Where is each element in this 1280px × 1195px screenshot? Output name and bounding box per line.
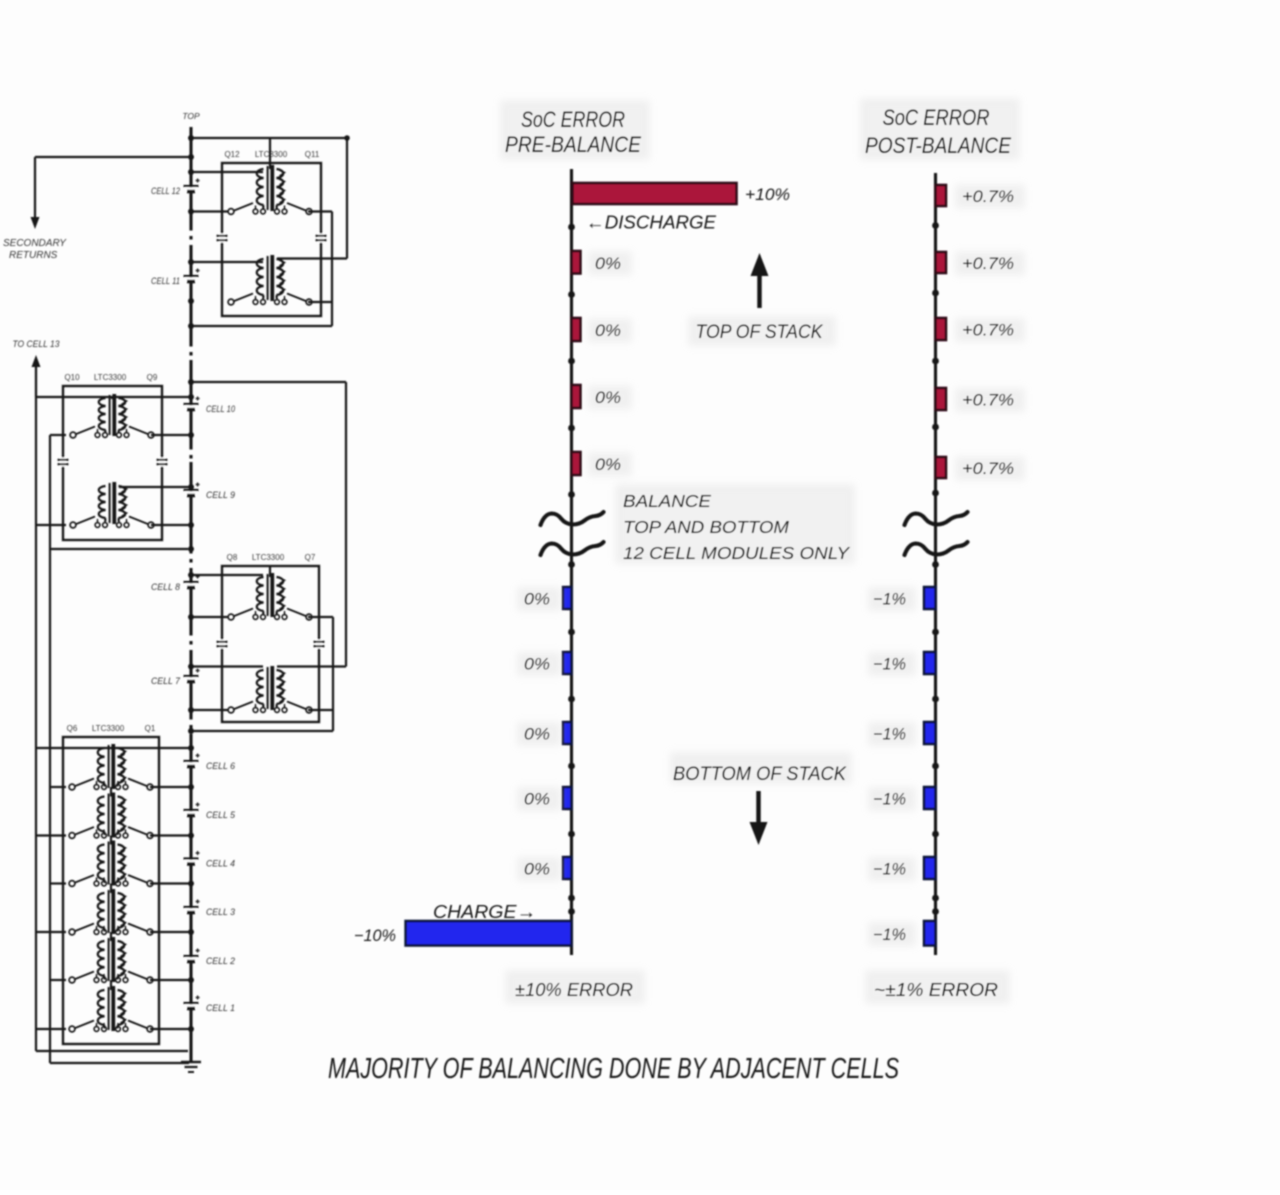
svg-text:CHARGE→: CHARGE→: [433, 901, 536, 922]
svg-text:0%: 0%: [524, 860, 550, 879]
svg-text:+0.7%: +0.7%: [962, 322, 1014, 340]
svg-text:−1%: −1%: [873, 726, 906, 744]
svg-text:+0.7%: +0.7%: [962, 392, 1014, 410]
svg-text:0%: 0%: [524, 655, 550, 674]
svg-text:+0.7%: +0.7%: [962, 460, 1014, 478]
svg-text:−10%: −10%: [354, 927, 396, 945]
svg-text:Q10: Q10: [64, 373, 80, 382]
svg-text:Q6: Q6: [67, 724, 78, 733]
svg-text:CELL 5: CELL 5: [206, 810, 236, 820]
svg-text:RETURNS: RETURNS: [9, 250, 58, 261]
svg-text:0%: 0%: [524, 590, 550, 609]
svg-text:0%: 0%: [524, 725, 550, 744]
svg-text:CELL 4: CELL 4: [206, 859, 235, 869]
svg-text:CELL 9: CELL 9: [206, 490, 235, 500]
svg-text:+10%: +10%: [745, 186, 790, 204]
svg-text:+0.7%: +0.7%: [962, 255, 1014, 273]
svg-text:~±1% ERROR: ~±1% ERROR: [874, 979, 998, 1000]
svg-text:±10% ERROR: ±10% ERROR: [515, 979, 633, 1000]
svg-text:LTC3300: LTC3300: [92, 724, 125, 733]
svg-text:−1%: −1%: [873, 926, 906, 944]
svg-text:CELL 1: CELL 1: [206, 1003, 235, 1013]
svg-text:0%: 0%: [595, 321, 621, 340]
svg-text:TO CELL 13: TO CELL 13: [13, 339, 61, 350]
svg-text:CELL 2: CELL 2: [206, 956, 235, 966]
svg-text:Q12: Q12: [224, 150, 240, 159]
svg-text:0%: 0%: [595, 254, 621, 273]
svg-text:−1%: −1%: [873, 791, 906, 809]
svg-text:CELL 12: CELL 12: [151, 186, 180, 196]
svg-text:TOP AND BOTTOM: TOP AND BOTTOM: [623, 517, 789, 537]
svg-text:12 CELL MODULES ONLY: 12 CELL MODULES ONLY: [623, 543, 850, 563]
svg-text:SoC ERROR: SoC ERROR: [521, 107, 625, 132]
svg-text:CELL 3: CELL 3: [206, 907, 235, 917]
svg-text:Q8: Q8: [227, 553, 238, 562]
svg-text:0%: 0%: [595, 388, 621, 407]
svg-text:Q9: Q9: [147, 373, 158, 382]
svg-text:0%: 0%: [524, 790, 550, 809]
svg-text:CELL 8: CELL 8: [151, 582, 180, 592]
svg-text:SoC ERROR: SoC ERROR: [883, 105, 990, 130]
svg-text:TOP OF STACK: TOP OF STACK: [696, 321, 824, 343]
svg-text:LTC3300: LTC3300: [94, 373, 127, 382]
svg-text:−1%: −1%: [873, 656, 906, 674]
svg-text:BALANCE: BALANCE: [623, 491, 711, 511]
svg-text:Q11: Q11: [305, 150, 320, 159]
svg-text:CELL 10: CELL 10: [206, 404, 235, 414]
svg-text:SECONDARY: SECONDARY: [3, 238, 67, 249]
svg-text:Q1: Q1: [145, 724, 156, 733]
svg-text:TOP: TOP: [182, 111, 200, 121]
svg-text:CELL 11: CELL 11: [151, 276, 180, 286]
svg-text:LTC3300: LTC3300: [252, 553, 285, 562]
svg-text:−1%: −1%: [873, 861, 906, 879]
svg-text:CELL 7: CELL 7: [151, 676, 181, 686]
svg-text:PRE-BALANCE: PRE-BALANCE: [505, 132, 641, 157]
svg-text:Q7: Q7: [305, 553, 316, 562]
svg-text:MAJORITY OF BALANCING DONE BY: MAJORITY OF BALANCING DONE BY ADJACENT C…: [328, 1053, 899, 1085]
svg-text:0%: 0%: [595, 455, 621, 474]
svg-text:−1%: −1%: [873, 591, 906, 609]
svg-text:+0.7%: +0.7%: [962, 188, 1014, 206]
svg-text:CELL 6: CELL 6: [206, 761, 235, 771]
svg-text:POST-BALANCE: POST-BALANCE: [865, 133, 1011, 158]
svg-text:BOTTOM OF STACK: BOTTOM OF STACK: [673, 763, 847, 785]
svg-text:LTC3300: LTC3300: [255, 150, 288, 159]
svg-text:←DISCHARGE: ←DISCHARGE: [586, 213, 717, 233]
